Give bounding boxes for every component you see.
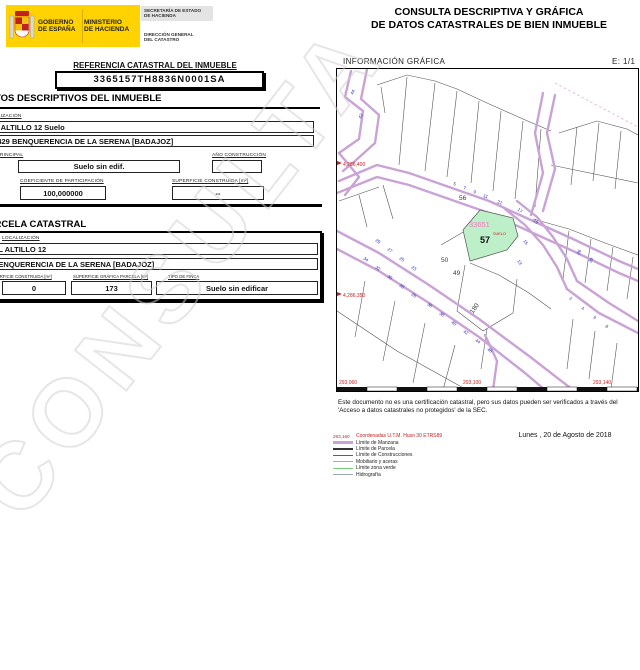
legend-label: Límite de Parcela [356,446,395,452]
parcela-catastral-box: LOCALIZACIÓN CL ALTILLO 12 BENQUERENCIA … [0,231,322,301]
coeficiente-value: 100,000000 [20,186,106,200]
legend-coord-label: Coordenadas U.T.M. Huso 30 ETRS89 [356,433,442,439]
document-title: CONSULTA DESCRIPTIVA Y GRÁFICA DE DATOS … [340,6,638,32]
map-number: 2 [568,296,573,302]
informacion-grafica-label: INFORMACIÓN GRÁFICA [343,57,445,66]
parcela-localizacion-label: LOCALIZACIÓN [2,236,40,241]
map-number: 56 [459,195,467,202]
map-number: 7 [463,185,467,191]
ano-construccion-label: AÑO CONSTRUCCIÓN [212,153,266,158]
gov-logo-block: GOBIERNODE ESPAÑA MINISTERIODE HACIENDA [6,5,140,47]
map-number: 8 [604,324,609,330]
legend-label: Mobiliario y aceras [356,459,398,465]
cadastral-map: 33651 57 SUELO 4,286,400 4,286,350 293,0… [336,68,639,392]
parcela-catastral-header: PARCELA CATASTRAL [0,219,86,230]
parcela-tipo-finca-label: TIPO DE FINCA [168,274,199,279]
logo-divider [82,9,83,43]
legend-label: Límite de Construcciones [356,452,412,458]
map-number: 44 [349,88,356,95]
parcela-tipo-finca-value: Suelo sin edificar [156,281,318,295]
document-date: Lunes , 20 de Agosto de 2018 [495,432,635,439]
map-number: 15 [522,239,529,246]
referencia-catastral-value: 3365157TH8836N0001SA [55,71,264,89]
map-number: 38 [438,311,445,318]
zona-verde-line-swatch [333,468,353,469]
map-number: 28 [588,256,595,263]
map-number: 6 [592,315,597,321]
coeficiente-label: COEFICIENTE DE PARTICIPACIÓN [20,179,104,184]
hidrografia-line-swatch [333,474,353,475]
subject-parcel-highlight [463,210,518,261]
map-number: 23 [410,265,417,272]
coord-left-top: 4,286,400 [343,162,365,168]
ministerio-hacienda-label: MINISTERIODE HACIENDA [84,19,129,33]
secretaria-estado-label: SECRETARÍA DE ESTADODE HACIENDA [141,6,213,21]
referencia-catastral-label: REFERENCIA CATASTRAL DEL INMUEBLE [20,61,290,70]
map-number: 25 [398,256,405,263]
map-number: 28 [398,283,405,290]
cadastral-map-svg: 33651 57 SUELO 4,286,400 4,286,350 293,0… [337,69,638,391]
coord-left-bottom: 4,286,350 [343,293,365,299]
address-line1: CL ALTILLO 12 Suelo [0,121,314,133]
coord-bottom-left: 293,060 [339,380,357,386]
subject-parcel-number: 57 [480,235,490,245]
mobiliario-line-swatch [333,461,353,462]
parcela-sup-grafica-label: SUPERFICIE GRÁFICA PARCELA [m²] [73,274,148,279]
map-scale-label: E: 1/1 [612,57,635,66]
parcela-line-swatch [333,448,353,449]
datos-descriptivos-header: DATOS DESCRIPTIVOS DEL INMUEBLE [0,93,320,109]
ano-construccion-value [212,160,262,173]
parcela-address-line1: CL ALTILLO 12 [0,243,318,255]
spain-coat-of-arms-icon [9,8,35,44]
parcela-sup-construida-value: 0 [2,281,66,295]
coord-bottom-right: 293,140 [593,380,611,386]
legend-row-hidrografia: Hidrografía [333,471,503,477]
legend-label: Hidrografía [356,472,381,478]
map-legend: 293,160 Coordenadas U.T.M. Huso 30 ETRS8… [333,433,503,478]
legend-label: Límite zona verde [356,465,396,471]
subject-parcel-tag: SUELO [493,232,506,236]
manzana-line-swatch [333,441,353,445]
parcela-address-line2: BENQUERENCIA DE LA SERENA [BADAJOZ] [0,258,318,270]
map-number: 180 [469,302,481,315]
direccion-general-label: DIRECCIÓN GENERALDEL CATASTRO [141,31,213,44]
map-number: 9 [473,189,477,195]
map-number: 4 [580,306,585,312]
map-number: 29 [374,238,381,245]
gobierno-espana-label: GOBIERNODE ESPAÑA [38,19,75,33]
coord-bottom-mid: 293,100 [463,380,481,386]
disclaimer-line1: Este documento no es una certificación c… [338,399,640,407]
map-number: 49 [453,270,461,277]
address-line2: 06429 BENQUERENCIA DE LA SERENA [BADAJOZ… [0,135,314,147]
parcela-sup-grafica-value: 173 [71,281,152,295]
map-number: 13 [516,259,523,266]
construcciones-line-swatch [333,455,353,456]
uso-principal-label: USO PRINCIPAL [0,153,23,158]
superficie-construida-value: -- [172,186,264,200]
map-number: 50 [441,257,449,264]
parcela-sup-construida-label: SUPERFICIE CONSTRUIDA [m²] [0,274,52,279]
map-number: 5 [453,181,457,187]
disclaimer-line2: 'Acceso a datos catastrales no protegido… [338,407,640,415]
legend-label: Límite de Manzana [356,440,399,446]
map-number: 27 [386,247,393,254]
section-divider [0,204,322,207]
map-number: 26 [410,292,417,299]
superficie-construida-label: SUPERFICIE CONSTRUIDA [m²] [172,179,248,184]
subject-parcel-id: 33651 [469,220,490,229]
uso-principal-value: Suelo sin edif. [18,160,180,173]
map-number: 36 [426,302,433,309]
legend-coord-sample: 293,160 [333,434,353,439]
localizacion-label: LOCALIZACIÓN [0,114,22,119]
